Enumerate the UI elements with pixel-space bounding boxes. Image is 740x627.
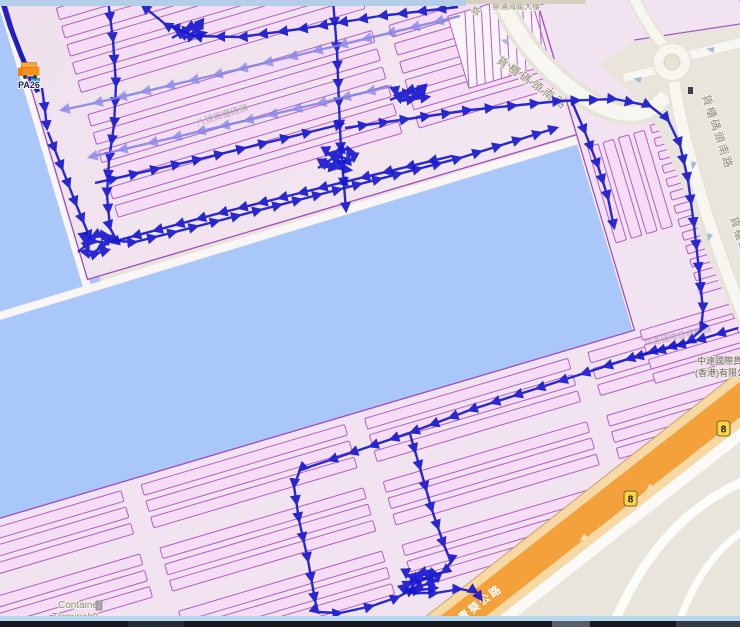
transit-stop-icon — [688, 87, 693, 94]
route-8-shield: 8 — [717, 421, 730, 436]
truck-id-label: PA26 — [18, 80, 40, 90]
terminal-en-label-line1: Container — [58, 600, 102, 611]
truck-wheel — [23, 75, 27, 79]
truck-cab — [18, 68, 23, 76]
company-label-line2: (香港)有限公司 — [695, 367, 740, 378]
bottom-taskbar-edge[interactable] — [0, 616, 740, 627]
map-canvas[interactable]: 8 8 葵涌海關大樓 路 貨櫃碼頭南路 貨櫃碼頭南路 貨櫃碼頭南路 八號貨櫃碼頭… — [0, 0, 740, 627]
top-strip — [0, 0, 466, 6]
route-8-shield: 8 — [624, 491, 637, 506]
top-strip-beige — [466, 0, 586, 4]
building-icon — [96, 601, 102, 610]
company-label-line1: 中遠國際貨櫃 — [697, 355, 740, 366]
truck-marker[interactable]: PA26 — [18, 63, 40, 91]
truck-container — [22, 63, 37, 68]
svg-text:8: 8 — [628, 495, 634, 506]
svg-text:8: 8 — [721, 425, 727, 436]
map-viewport[interactable]: 8 8 葵涌海關大樓 路 貨櫃碼頭南路 貨櫃碼頭南路 貨櫃碼頭南路 八號貨櫃碼頭… — [0, 0, 740, 627]
truck-wheel — [33, 75, 37, 79]
